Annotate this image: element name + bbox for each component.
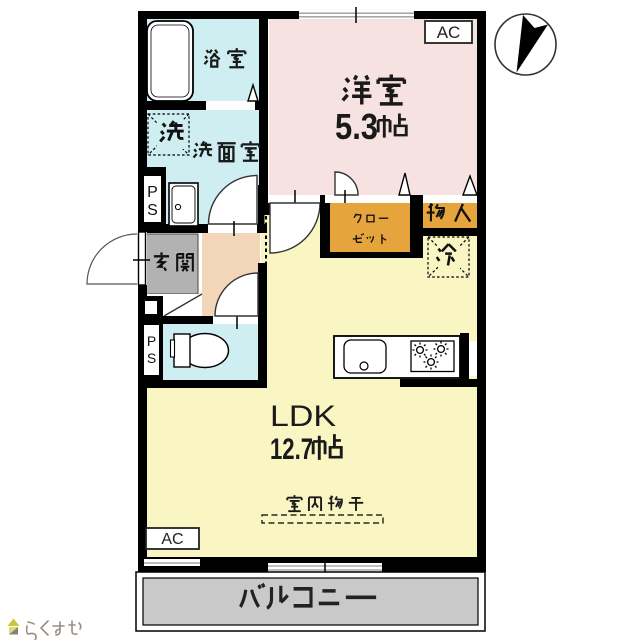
svg-text:AC: AC [437, 23, 461, 42]
svg-text:5.3: 5.3 [335, 106, 378, 147]
svg-text:S: S [147, 350, 156, 366]
svg-text:P: P [147, 184, 158, 201]
svg-text:12.7: 12.7 [270, 433, 313, 466]
svg-text:S: S [147, 202, 158, 219]
svg-text:LDK: LDK [270, 400, 336, 433]
svg-text:AC: AC [161, 531, 183, 548]
svg-text:P: P [147, 333, 156, 349]
